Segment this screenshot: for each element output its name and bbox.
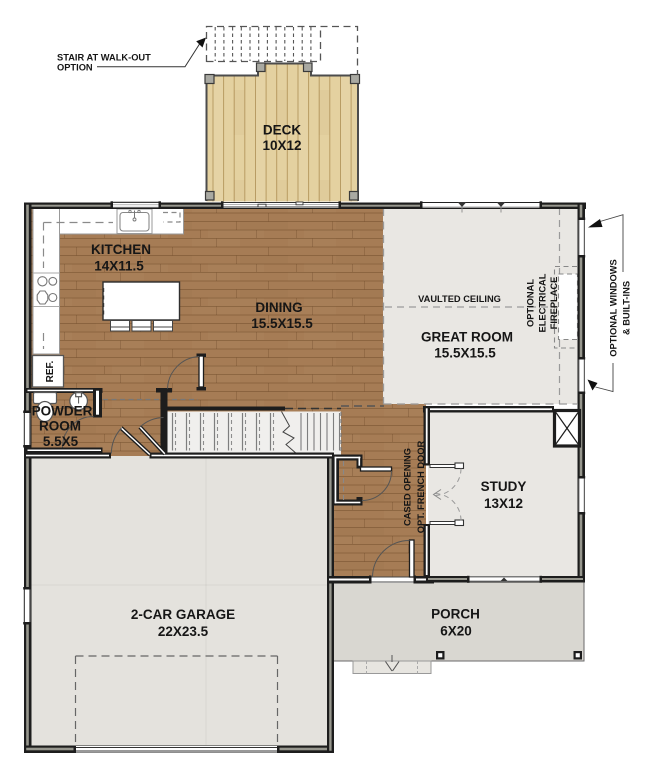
svg-text:ROOM: ROOM <box>39 419 81 434</box>
svg-text:10X12: 10X12 <box>262 138 301 153</box>
svg-text:13X12: 13X12 <box>484 496 523 511</box>
svg-text:6X20: 6X20 <box>440 624 472 639</box>
svg-text:KITCHEN: KITCHEN <box>91 242 151 257</box>
svg-text:& BUILT-INS: & BUILT-INS <box>622 281 632 335</box>
svg-text:OPTIONAL WINDOWS: OPTIONAL WINDOWS <box>609 259 619 356</box>
svg-text:REF.: REF. <box>45 360 56 382</box>
svg-text:2-CAR GARAGE: 2-CAR GARAGE <box>131 607 235 622</box>
svg-text:GREAT ROOM: GREAT ROOM <box>421 330 513 345</box>
svg-text:ELECTRICAL: ELECTRICAL <box>537 273 547 332</box>
svg-text:FIREPLACE: FIREPLACE <box>549 277 559 330</box>
svg-text:OPTIONAL: OPTIONAL <box>526 279 536 327</box>
svg-text:DECK: DECK <box>263 123 302 138</box>
svg-text:15.5X15.5: 15.5X15.5 <box>251 316 313 331</box>
svg-text:POWDER: POWDER <box>32 404 93 419</box>
svg-text:14X11.5: 14X11.5 <box>94 259 144 274</box>
svg-text:PORCH: PORCH <box>431 607 480 622</box>
svg-text:CASED OPENING: CASED OPENING <box>403 448 413 526</box>
svg-text:OPTION: OPTION <box>57 63 93 73</box>
svg-text:STUDY: STUDY <box>481 479 527 494</box>
svg-text:OPT. FRENCH DOOR: OPT. FRENCH DOOR <box>416 440 426 533</box>
svg-text:DINING: DINING <box>255 300 302 315</box>
svg-text:VAULTED CEILING: VAULTED CEILING <box>418 294 501 304</box>
svg-text:22X23.5: 22X23.5 <box>158 624 209 639</box>
svg-text:STAIR AT WALK-OUT: STAIR AT WALK-OUT <box>57 53 151 63</box>
svg-text:15.5X15.5: 15.5X15.5 <box>434 346 496 361</box>
svg-text:5.5X5: 5.5X5 <box>43 434 79 449</box>
